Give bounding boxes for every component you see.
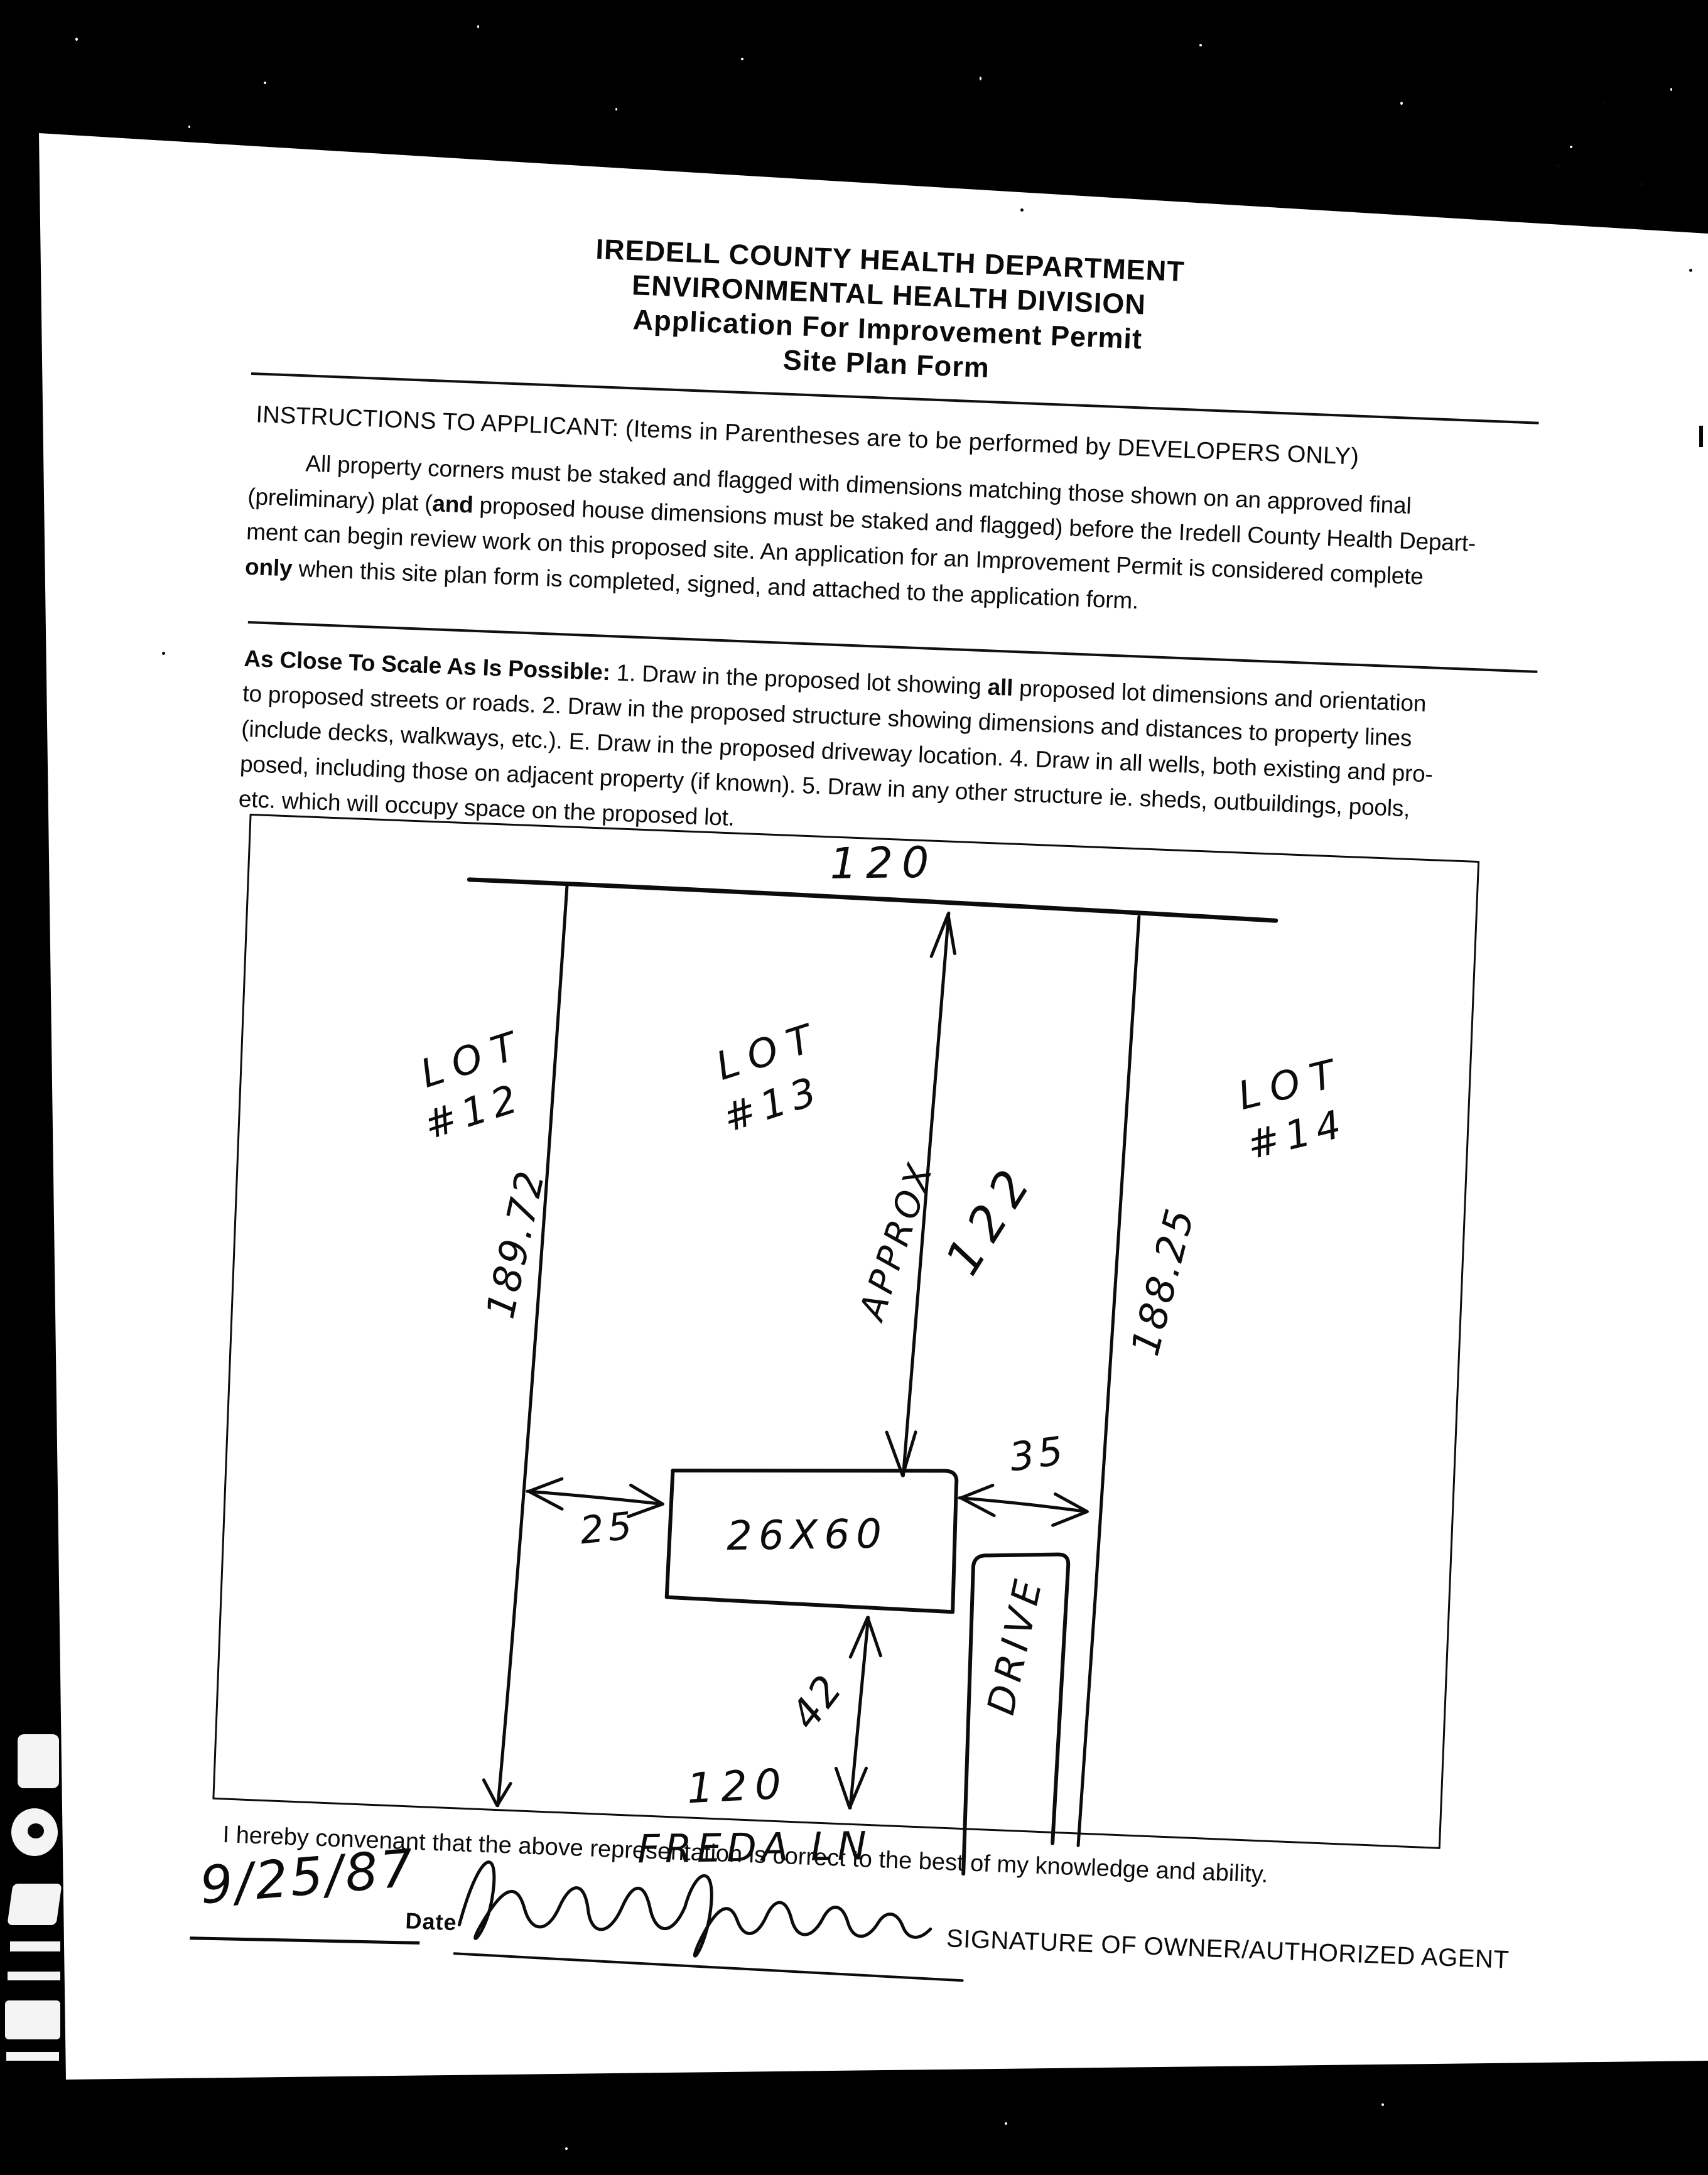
bottom-offset-text: 42 — [782, 1665, 853, 1738]
scan-noise-dot — [1570, 146, 1572, 148]
scan-noise-dot — [188, 126, 190, 128]
left-offset-label: 25 — [578, 1504, 637, 1553]
right-offset-text: 35 — [1007, 1427, 1069, 1481]
document-content: IREDELL COUNTY HEALTH DEPARTMENT ENVIRON… — [4, 207, 1619, 2124]
paragraph-bold-text: and — [432, 490, 474, 517]
scan-noise-dot — [1199, 44, 1202, 46]
film-edge-marks — [6, 2052, 59, 2061]
bottom-dimension-label: 120 — [686, 1759, 790, 1813]
bottom-offset-label: 42 — [782, 1665, 853, 1738]
approx-value-text: 122 — [934, 1152, 1046, 1285]
film-edge-marks — [10, 1941, 60, 1951]
scan-edge-tick — [1699, 426, 1703, 447]
paragraph-bold-text: all — [987, 674, 1013, 701]
film-edge-marks — [7, 1884, 62, 1925]
scan-noise-dot — [1555, 163, 1560, 168]
drive-text: DRIVE — [979, 1572, 1052, 1719]
scan-noise-dot — [1020, 208, 1024, 212]
scan-noise-dot — [1670, 88, 1672, 91]
scan-noise-dot — [1381, 2103, 1384, 2106]
left-lot-line-arrowhead — [483, 1780, 511, 1806]
paragraph-bold-text: only — [244, 554, 293, 581]
paragraph-text: (preliminary) plat ( — [247, 483, 433, 516]
scan-noise-dot — [162, 652, 165, 655]
arrowhead-up — [931, 914, 956, 957]
scan-noise-dot — [1603, 100, 1606, 104]
film-edge-marks — [18, 1734, 59, 1788]
date-label: Date — [405, 1908, 458, 1936]
right-lot-line — [1078, 915, 1139, 1846]
scan-noise-dot — [75, 38, 78, 41]
scan-noise-dot — [1689, 269, 1692, 272]
signature-caption: SIGNATURE OF OWNER/AUTHORIZED AGENT — [946, 1924, 1510, 1974]
scan-noise-dot — [1640, 182, 1645, 186]
scan-noise-dot — [264, 82, 266, 84]
top-dimension-label: 120 — [830, 838, 938, 889]
film-edge-marks — [5, 2000, 60, 2039]
right-dimension-text: 188.25 — [1122, 1202, 1204, 1360]
scan-noise-dot — [477, 25, 479, 28]
arrowhead-down — [835, 1767, 866, 1808]
scan-noise-dot — [565, 2147, 568, 2150]
lot-13-label: LOT #13 — [701, 1012, 844, 1141]
house-size-label: 26X60 — [727, 1511, 889, 1560]
signature-underline — [454, 1953, 963, 1980]
scan-noise-dot — [1005, 2122, 1007, 2125]
right-dimension-label: 188.25 — [1122, 1202, 1204, 1360]
approx-value-label: 122 — [934, 1152, 1046, 1285]
scan-noise-dot — [741, 58, 743, 60]
bottom-offset-arrow — [850, 1617, 868, 1808]
left-offset-text: 25 — [578, 1504, 637, 1553]
scan-noise-dot — [1400, 102, 1403, 105]
site-plan-figure: 120 LOT #12 LOT #13 LOT #14 189.72 188.2… — [208, 811, 1482, 1907]
left-lot-line — [498, 882, 567, 1807]
scan-noise-dot — [615, 108, 617, 111]
scan-noise-dot — [980, 77, 981, 80]
signature-stroke — [458, 1861, 932, 1965]
instructions-paragraph: All property corners must be staked and … — [244, 444, 1478, 632]
right-offset-label: 35 — [1007, 1427, 1069, 1481]
film-edge-marks — [28, 1823, 44, 1838]
date-underline — [190, 1936, 419, 1945]
scanned-page-canvas: IREDELL COUNTY HEALTH DEPARTMENT ENVIRON… — [0, 0, 1708, 2175]
approx-label: APPROX — [851, 1156, 941, 1327]
approx-text: APPROX — [851, 1156, 941, 1327]
lot-14-label: LOT #14 — [1231, 1049, 1363, 1168]
film-edge-marks — [8, 1972, 60, 1980]
drive-label: DRIVE — [979, 1572, 1052, 1719]
lot-12-label: LOT #12 — [403, 1020, 548, 1148]
